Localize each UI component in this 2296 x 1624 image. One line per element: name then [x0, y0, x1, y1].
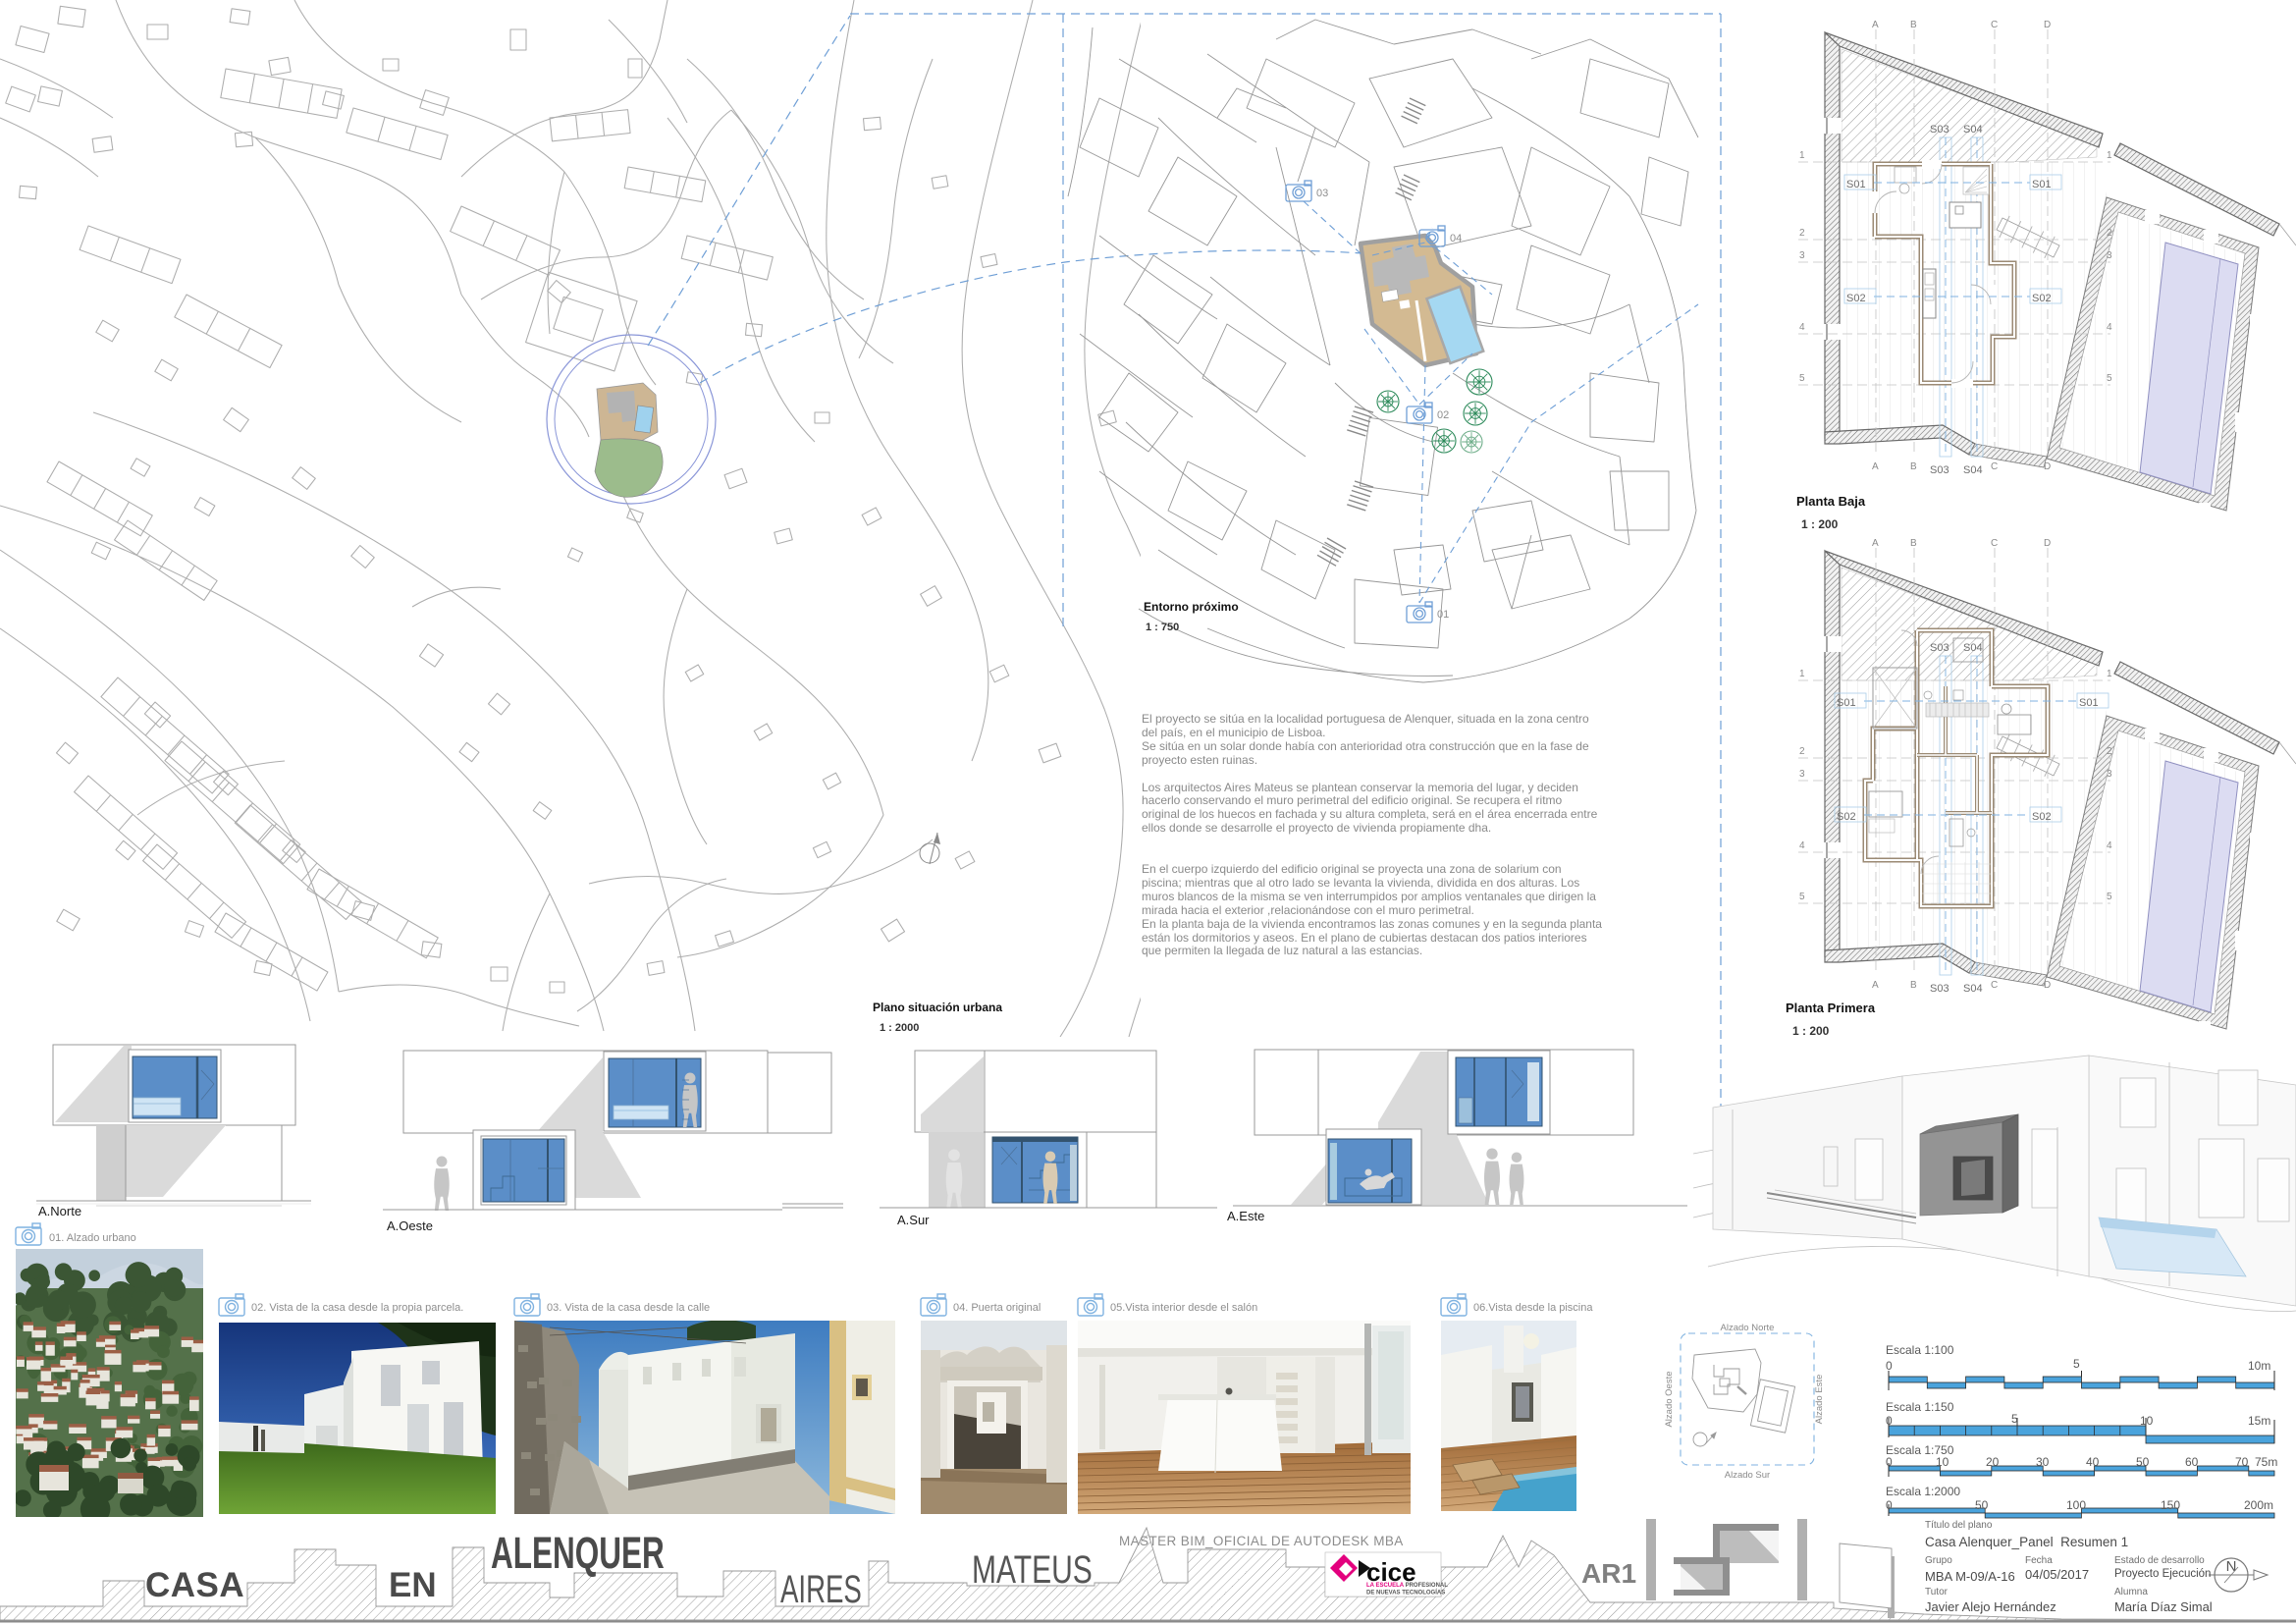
svg-text:1: 1 [1799, 669, 1805, 679]
svg-text:4: 4 [2107, 840, 2112, 851]
svg-text:N: N [2226, 1558, 2237, 1575]
svg-text:B: B [1910, 980, 1917, 991]
svg-text:5: 5 [1799, 892, 1805, 902]
svg-text:Alzado Este: Alzado Este [1814, 1375, 1825, 1425]
svg-text:A: A [1872, 538, 1879, 549]
svg-text:1: 1 [1799, 150, 1805, 161]
svg-text:B: B [1910, 461, 1917, 472]
svg-text:5: 5 [2107, 892, 2112, 902]
svg-text:3: 3 [1799, 250, 1805, 261]
svg-text:C: C [1991, 461, 1998, 472]
svg-text:S04: S04 [1963, 983, 1983, 995]
svg-text:S03: S03 [1930, 983, 1949, 995]
svg-text:S03: S03 [1930, 124, 1949, 135]
svg-text:S03: S03 [1930, 464, 1949, 476]
svg-text:A: A [1872, 980, 1879, 991]
svg-text:A: A [1872, 20, 1879, 30]
svg-text:S04: S04 [1963, 642, 1983, 654]
svg-text:3: 3 [2107, 769, 2112, 780]
svg-text:1: 1 [2107, 150, 2112, 161]
svg-text:5: 5 [1799, 373, 1805, 384]
svg-text:D: D [2044, 980, 2051, 991]
svg-text:04: 04 [1450, 233, 1462, 244]
svg-text:1: 1 [2107, 669, 2112, 679]
svg-text:4: 4 [2107, 322, 2112, 333]
svg-text:S02: S02 [2032, 811, 2052, 823]
svg-text:A: A [1872, 461, 1879, 472]
svg-text:2: 2 [2107, 228, 2112, 239]
svg-text:2: 2 [1799, 746, 1805, 757]
svg-text:S03: S03 [1930, 642, 1949, 654]
svg-text:S04: S04 [1963, 464, 1983, 476]
svg-text:2: 2 [1799, 228, 1805, 239]
svg-text:3: 3 [2107, 250, 2112, 261]
svg-text:B: B [1910, 538, 1917, 549]
svg-text:D: D [2044, 461, 2051, 472]
svg-text:S01: S01 [2032, 179, 2052, 190]
svg-text:3: 3 [1799, 769, 1805, 780]
svg-text:C: C [1991, 980, 1998, 991]
svg-text:D: D [2044, 20, 2051, 30]
svg-text:01: 01 [1437, 609, 1449, 621]
svg-text:S01: S01 [2079, 697, 2099, 709]
svg-text:S02: S02 [1837, 811, 1856, 823]
svg-text:C: C [1991, 20, 1998, 30]
svg-text:2: 2 [2107, 746, 2112, 757]
svg-text:Alzado Oeste: Alzado Oeste [1664, 1371, 1675, 1427]
svg-text:LA ESCUELA PROFESIONAL: LA ESCUELA PROFESIONAL [1366, 1583, 1448, 1589]
svg-text:4: 4 [1799, 322, 1805, 333]
svg-text:D: D [2044, 538, 2051, 549]
svg-text:C: C [1991, 538, 1998, 549]
svg-text:5: 5 [2107, 373, 2112, 384]
svg-text:S02: S02 [1846, 293, 1866, 304]
svg-text:S02: S02 [2032, 293, 2052, 304]
svg-text:4: 4 [1799, 840, 1805, 851]
svg-text:S01: S01 [1846, 179, 1866, 190]
svg-text:Alzado Norte: Alzado Norte [1721, 1323, 1775, 1333]
svg-text:Alzado Sur: Alzado Sur [1725, 1470, 1770, 1481]
svg-text:B: B [1910, 20, 1917, 30]
svg-text:02: 02 [1437, 409, 1449, 421]
svg-text:DE NUEVAS TECNOLOGÍAS: DE NUEVAS TECNOLOGÍAS [1366, 1589, 1445, 1597]
svg-text:03: 03 [1316, 188, 1328, 199]
svg-text:S04: S04 [1963, 124, 1983, 135]
svg-text:S01: S01 [1837, 697, 1856, 709]
